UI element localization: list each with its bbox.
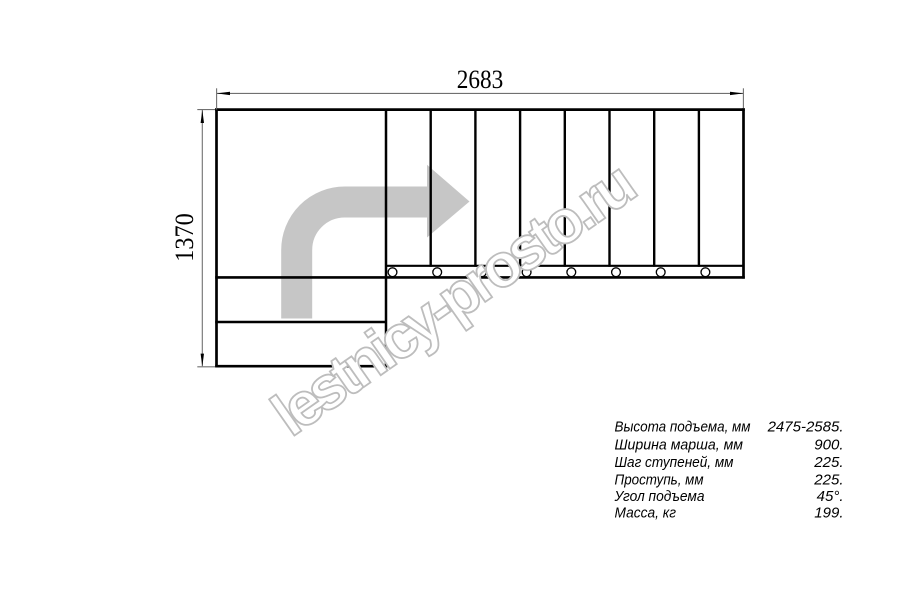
svg-text:Масса, кг: Масса, кг: [615, 505, 677, 522]
svg-text:Ширина марша, мм: Ширина марша, мм: [615, 437, 744, 454]
svg-text:Проступь, мм: Проступь, мм: [615, 471, 704, 488]
svg-text:1370: 1370: [170, 213, 199, 262]
svg-text:Угол подъема: Угол подъема: [614, 488, 705, 505]
svg-text:2683: 2683: [457, 65, 504, 94]
svg-text:Шаг ступеней, мм: Шаг ступеней, мм: [615, 454, 734, 471]
svg-text:900.: 900.: [814, 437, 843, 454]
svg-text:2475-2585.: 2475-2585.: [767, 419, 844, 436]
svg-text:225.: 225.: [813, 471, 843, 488]
svg-text:199.: 199.: [814, 505, 843, 522]
svg-text:225.: 225.: [813, 454, 843, 471]
svg-text:Высота подъема, мм: Высота подъема, мм: [615, 419, 751, 436]
svg-text:45°.: 45°.: [817, 488, 844, 505]
